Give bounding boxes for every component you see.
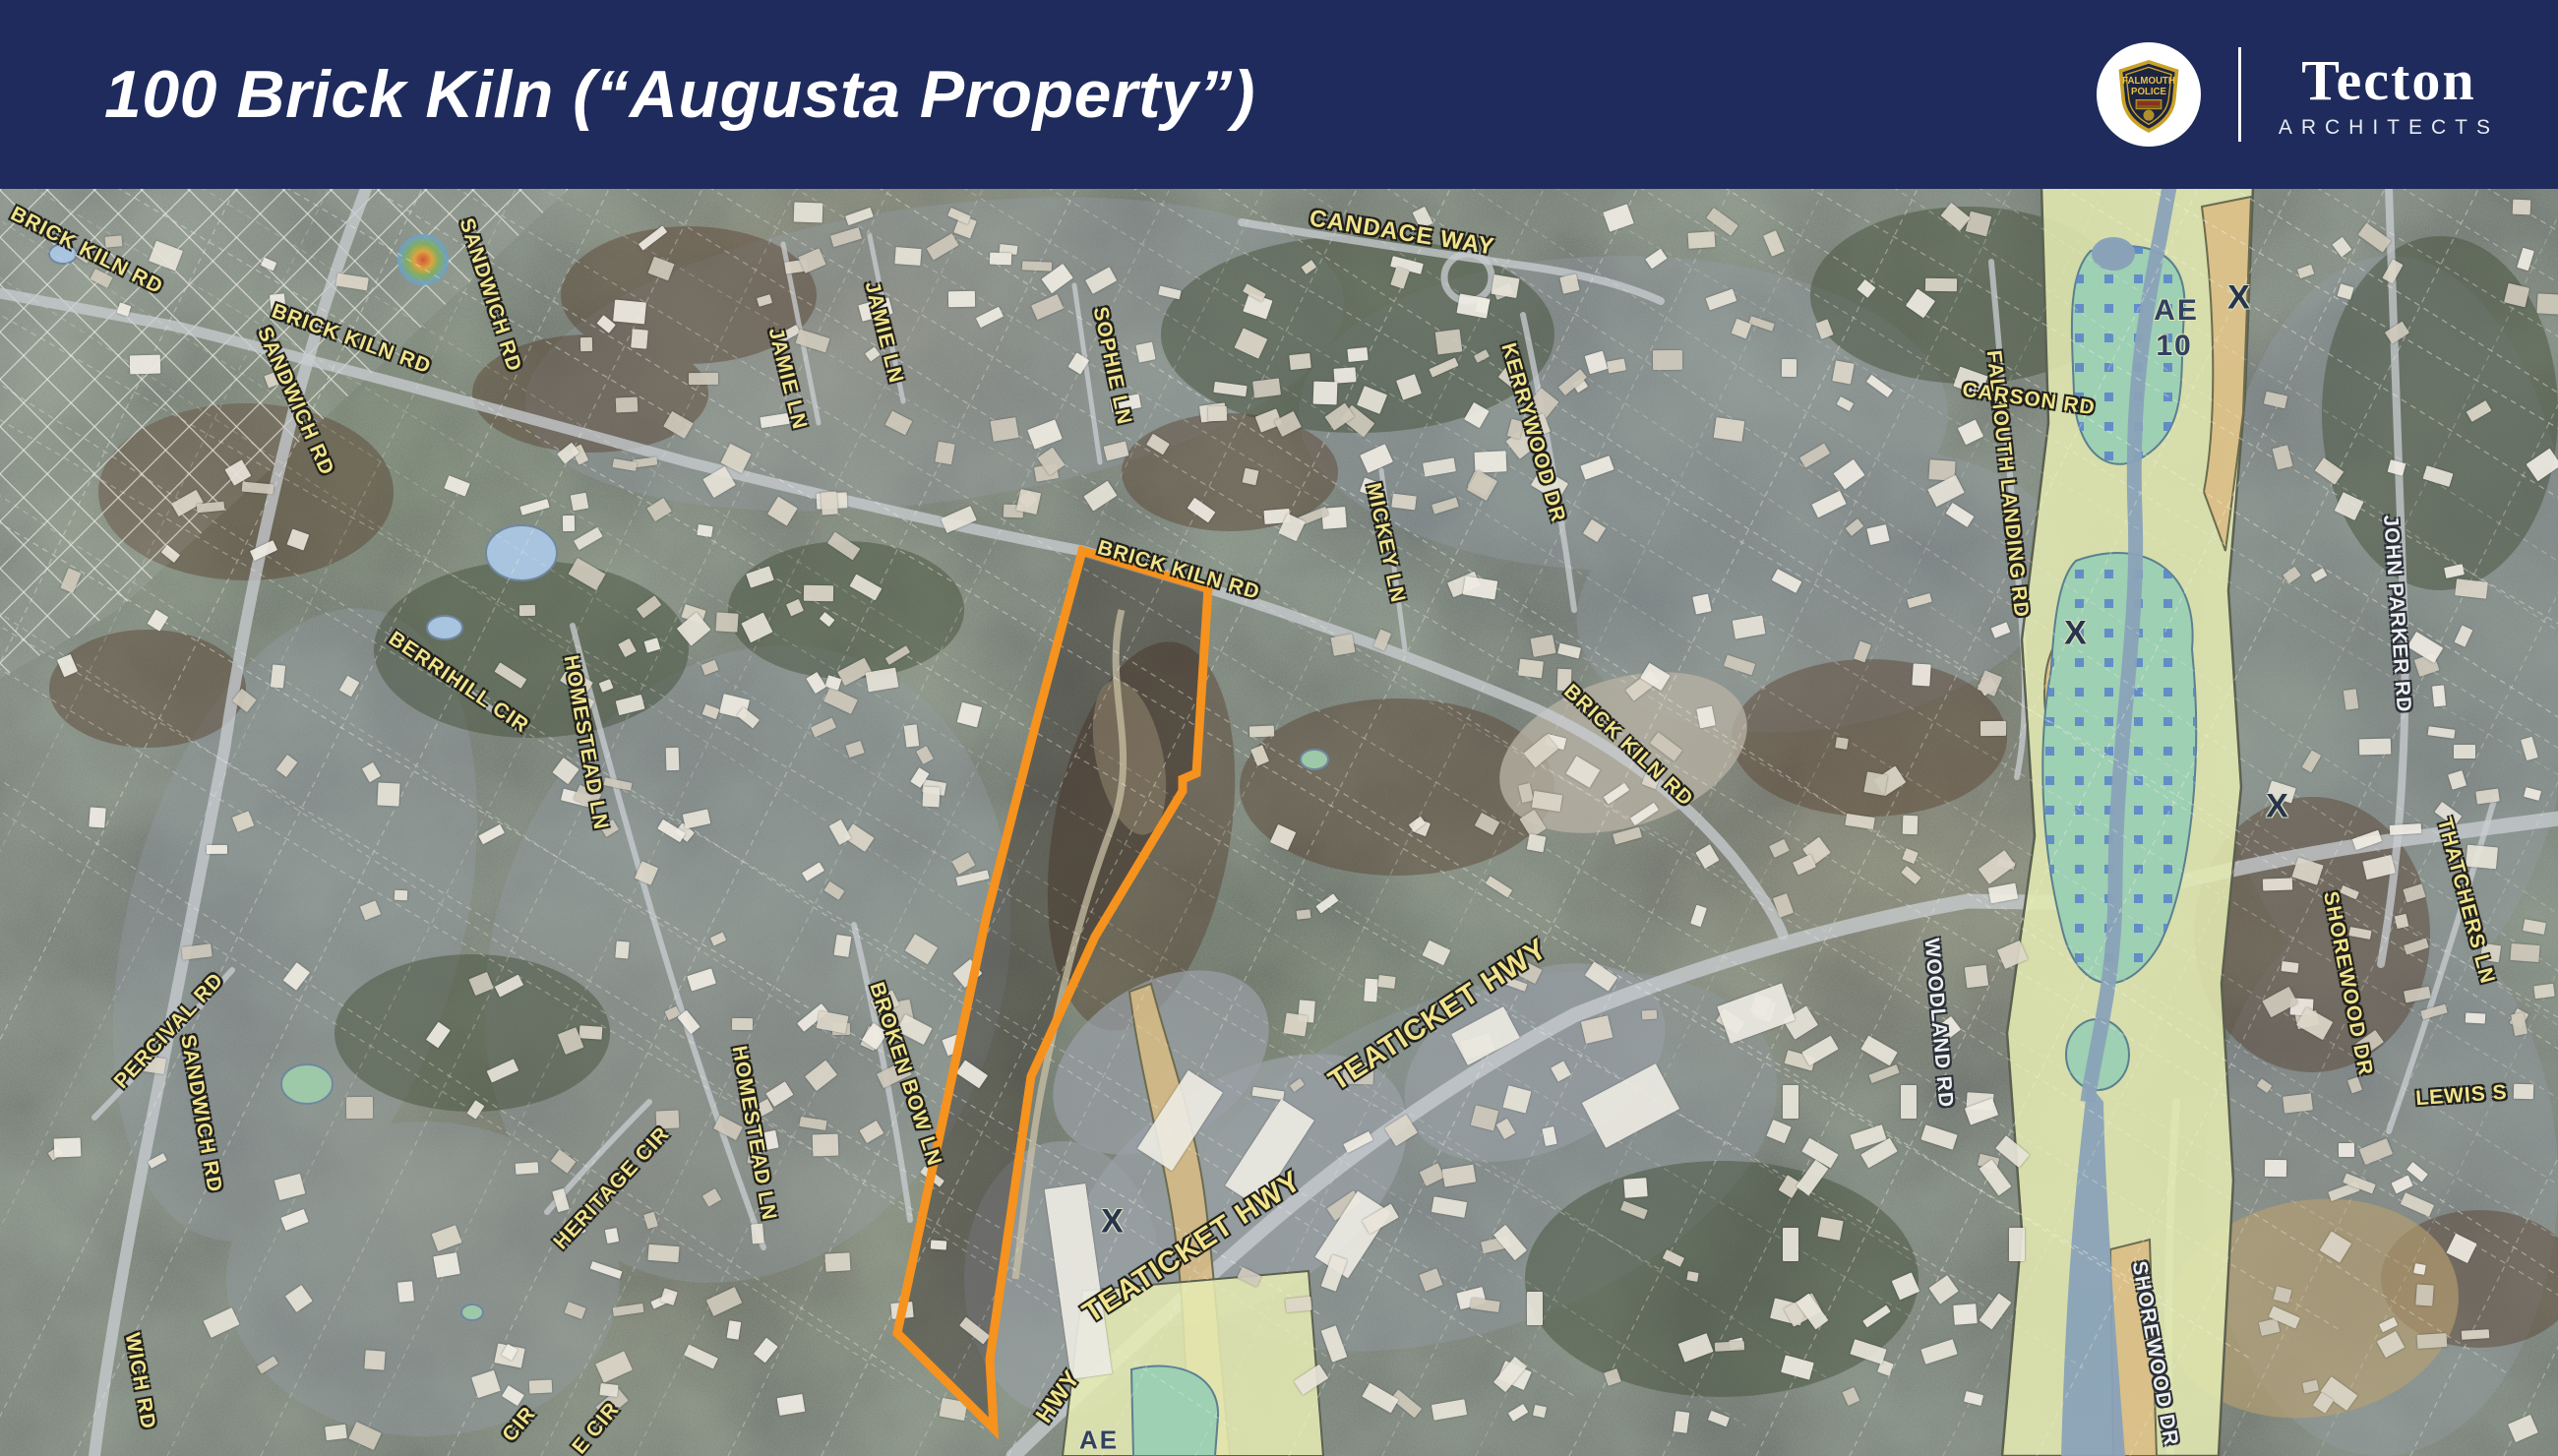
slide-header: 100 Brick Kiln (“Augusta Property”) FALM… bbox=[0, 0, 2558, 189]
aerial-map: BRICK KILN RDBRICK KILN RDSANDWICH RDSAN… bbox=[0, 0, 2558, 1456]
logo-group: FALMOUTH POLICE Tecton ARCHITECTS bbox=[2097, 42, 2499, 147]
tecton-logo-tagline: ARCHITECTS bbox=[2279, 117, 2499, 138]
slide: BRICK KILN RDBRICK KILN RDSANDWICH RDSAN… bbox=[0, 0, 2558, 1456]
tecton-logo-name: Tecton bbox=[2301, 52, 2475, 109]
badge-text-police: POLICE bbox=[2131, 87, 2167, 97]
slide-title: 100 Brick Kiln (“Augusta Property”) bbox=[104, 56, 1255, 133]
aerial-imagery-texture bbox=[0, 0, 2558, 1456]
badge-text-falmouth: FALMOUTH bbox=[2122, 76, 2175, 87]
tecton-architects-logo: Tecton ARCHITECTS bbox=[2279, 52, 2499, 138]
logo-divider bbox=[2238, 47, 2241, 142]
falmouth-police-badge-icon: FALMOUTH POLICE bbox=[2097, 42, 2201, 147]
